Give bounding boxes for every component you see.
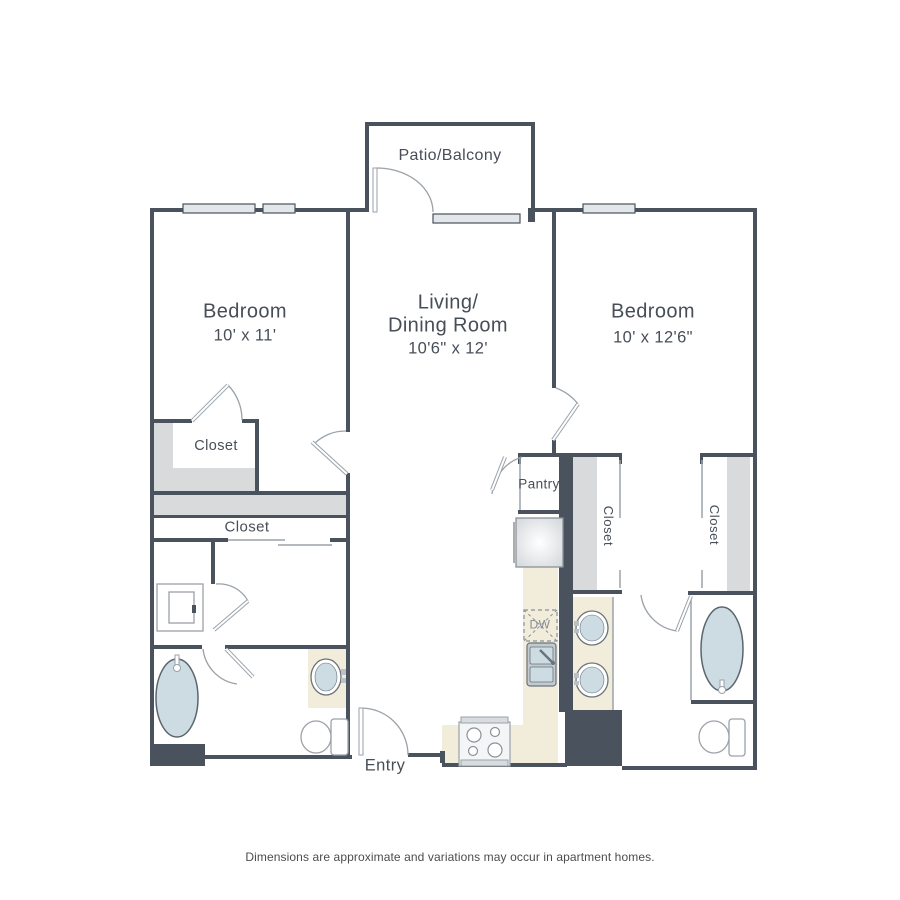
window-living-patio bbox=[433, 214, 520, 223]
bedroom-right-label: Bedroom bbox=[611, 300, 695, 325]
right-closet-a-label: Closet bbox=[600, 506, 616, 546]
stove bbox=[459, 717, 510, 766]
hall-closet-label: Closet bbox=[225, 519, 270, 538]
right-closet-b-label: Closet bbox=[706, 505, 722, 545]
living-dims: 10'6" x 12' bbox=[408, 339, 488, 360]
bedroom-left-label: Bedroom bbox=[203, 300, 287, 325]
bedroom-left-dims: 10' x 11' bbox=[214, 326, 277, 347]
floor-plan-page: Patio/Balcony Bedroom 10' x 11' Living/ … bbox=[0, 0, 900, 900]
bathtub-left bbox=[156, 655, 198, 737]
dishwasher-label: DW bbox=[530, 618, 551, 633]
living-label-line1: Living/ bbox=[418, 291, 479, 316]
door-leaves bbox=[192, 168, 691, 755]
disclaimer-text: Dimensions are approximate and variation… bbox=[245, 850, 654, 864]
bedroom-left-door-arc bbox=[314, 431, 346, 444]
entry-label: Entry bbox=[365, 756, 406, 777]
toilet-left bbox=[301, 719, 348, 755]
closet-door-arc bbox=[228, 385, 242, 420]
living-label-line2: Dining Room bbox=[388, 314, 508, 339]
floor-plan-drawing bbox=[0, 0, 900, 900]
windows bbox=[183, 204, 635, 223]
patio-door-arc bbox=[377, 168, 433, 212]
patio-door-leaf bbox=[373, 168, 377, 212]
kitchen-sink bbox=[527, 643, 556, 686]
closet-shading bbox=[154, 423, 750, 591]
window-bedroom-right bbox=[583, 204, 635, 213]
entry-door-arc bbox=[361, 708, 408, 755]
pantry-label: Pantry bbox=[518, 477, 559, 494]
bedroom-right-dims: 10' x 12'6" bbox=[613, 328, 693, 349]
refrigerator bbox=[514, 518, 563, 567]
entry-door-leaf bbox=[359, 708, 363, 755]
bedroom-left-closet-label: Closet bbox=[194, 437, 238, 455]
toilet-right bbox=[699, 719, 745, 756]
bath-right-door-arc bbox=[641, 595, 677, 631]
bathtub-right bbox=[701, 607, 743, 694]
patio-label: Patio/Balcony bbox=[398, 146, 501, 166]
window-bedroom-left-1 bbox=[183, 204, 255, 213]
washer-dryer bbox=[157, 584, 203, 631]
bedroom-right-door-arc bbox=[556, 388, 578, 404]
window-bedroom-left-2 bbox=[263, 204, 295, 213]
hall-door-arc bbox=[216, 584, 248, 601]
